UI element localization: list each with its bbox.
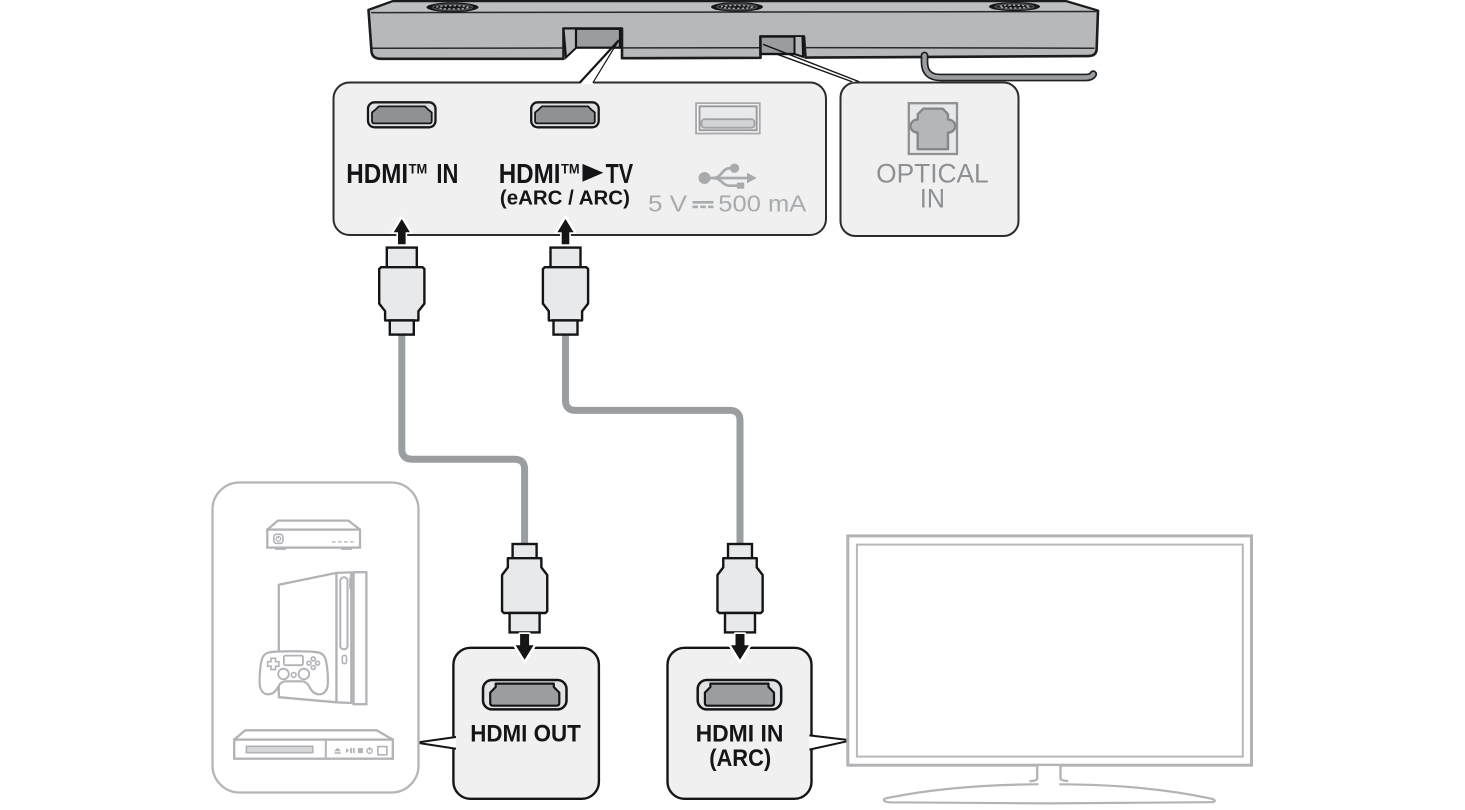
svg-text:HDMI IN: HDMI IN [696, 721, 784, 748]
svg-text:IN: IN [920, 184, 945, 214]
svg-text:500 mA: 500 mA [718, 191, 807, 217]
svg-text:(eARC / ARC): (eARC / ARC) [500, 186, 630, 209]
svg-text:TM: TM [561, 161, 580, 177]
svg-text:TM: TM [409, 161, 428, 177]
svg-text:5 V: 5 V [648, 191, 688, 217]
svg-text:(ARC): (ARC) [709, 745, 771, 772]
svg-text:HDMI: HDMI [346, 158, 408, 189]
svg-text:HDMI OUT: HDMI OUT [470, 720, 581, 747]
svg-text:HDMI: HDMI [499, 158, 561, 189]
svg-text:IN: IN [436, 158, 458, 189]
svg-text:TV: TV [606, 158, 634, 189]
